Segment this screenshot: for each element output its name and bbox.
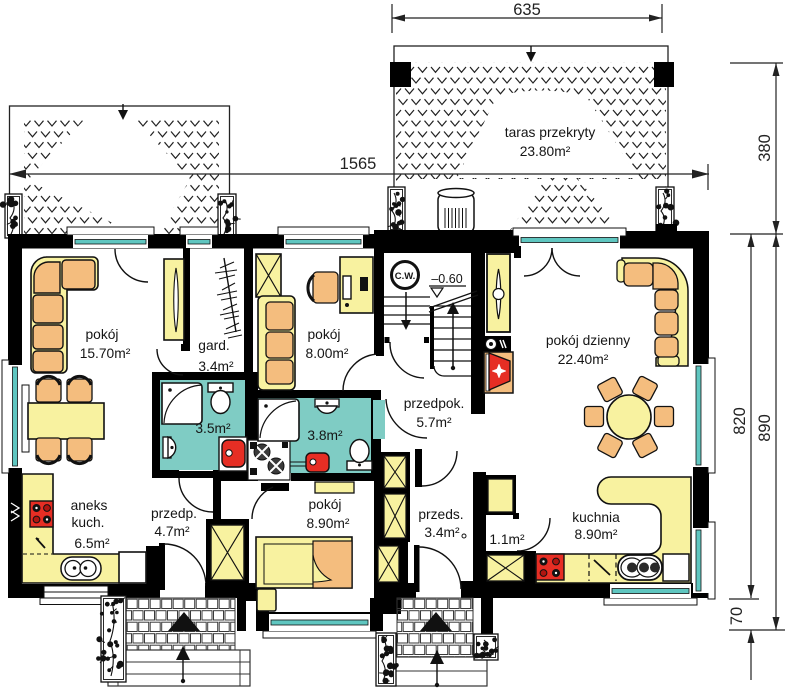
svg-text:kuchnia: kuchnia [572,510,620,525]
svg-text:przedpok.: przedpok. [404,396,465,411]
svg-text:aneks: aneks [71,498,108,513]
svg-text:pokój: pokój [308,327,341,342]
svg-text:pokój: pokój [86,327,119,342]
svg-text:1565: 1565 [340,155,377,173]
svg-text:8.90m²: 8.90m² [575,527,618,542]
svg-text:6.5m²: 6.5m² [74,536,110,551]
svg-text:890: 890 [756,414,774,442]
svg-text:1.1m²: 1.1m² [489,532,525,547]
svg-text:gard.: gard. [198,338,229,353]
svg-text:taras przekryty: taras przekryty [505,125,596,140]
svg-text:pokój dzienny: pokój dzienny [546,333,630,348]
svg-text:8.00m²: 8.00m² [306,346,349,361]
svg-text:przeds.: przeds. [418,507,463,522]
svg-text:C.W.: C.W. [395,271,416,282]
svg-text:przedp.: przedp. [151,506,197,521]
svg-text:380: 380 [756,134,774,162]
svg-text:4.7m²: 4.7m² [154,524,190,539]
svg-text:5.7m²: 5.7m² [416,415,452,430]
svg-text:23.80m²: 23.80m² [520,144,571,159]
svg-text:3.8m²: 3.8m² [307,428,343,443]
svg-text:8.90m²: 8.90m² [307,516,350,531]
svg-text:820: 820 [731,407,749,435]
svg-text:3.4m²: 3.4m² [424,525,460,540]
svg-text:pokój: pokój [309,497,342,512]
svg-text:–0.60: –0.60 [431,272,462,286]
svg-text:22.40m²: 22.40m² [558,352,609,367]
svg-text:kuch.: kuch. [72,515,105,530]
svg-text:70: 70 [728,607,746,625]
svg-text:3.4m²: 3.4m² [198,359,234,374]
svg-text:15.70m²: 15.70m² [80,346,131,361]
svg-text:635: 635 [513,1,541,19]
svg-text:3.5m²: 3.5m² [195,421,231,436]
